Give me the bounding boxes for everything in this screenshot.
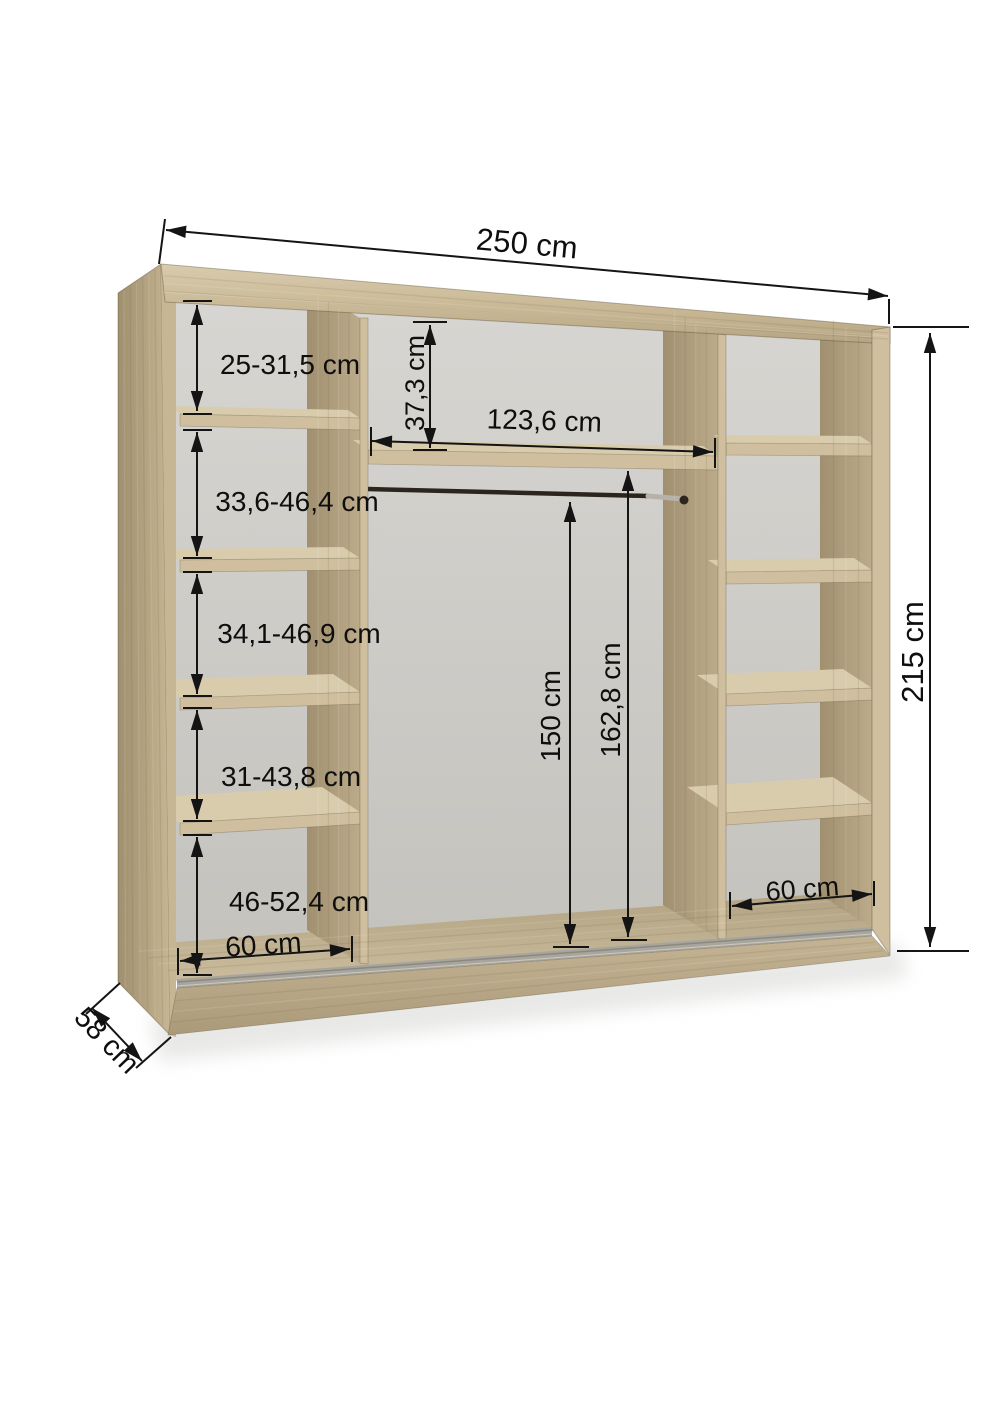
right-divider-front-edge <box>718 334 726 941</box>
rod-height-label: 150 cm <box>535 670 566 762</box>
dimension-arrowhead <box>868 288 888 300</box>
hanging-rod-metal-end <box>648 496 683 499</box>
wardrobe-dimension-diagram: 250 cm 215 cm 58 cm 25-31,5 cm 33,6-46,4… <box>0 0 992 1403</box>
dimension-arrowhead <box>924 333 936 353</box>
shelf-top <box>708 558 872 572</box>
dimension-extension-tick <box>159 219 165 264</box>
right-divider-side-face <box>663 303 718 938</box>
left-compartment-3-label: 34,1-46,9 cm <box>217 618 380 649</box>
middle-opening-height-label: 162,8 cm <box>595 642 626 757</box>
middle-top-gap-label: 37,3 cm <box>400 335 430 431</box>
diagram-canvas: 250 cm 215 cm 58 cm 25-31,5 cm 33,6-46,4… <box>0 0 992 1403</box>
shelf-edge <box>726 570 872 584</box>
right-side-panel-edge <box>872 327 890 955</box>
overall-height-label: 215 cm <box>895 601 930 703</box>
shelf-edge <box>180 558 360 572</box>
overall-depth-label: 58 cm <box>68 1001 146 1080</box>
hanging-rod-end-cap <box>680 496 689 505</box>
shelf-top <box>714 435 872 444</box>
shelf-edge <box>726 443 872 456</box>
right-section-width-label: 60 cm <box>764 871 840 907</box>
left-compartment-1-label: 25-31,5 cm <box>220 349 360 380</box>
left-section-width-label: 60 cm <box>224 926 302 962</box>
left-compartment-5-label: 46-52,4 cm <box>229 886 369 917</box>
middle-width-label: 123,6 cm <box>486 403 602 438</box>
left-compartment-2-label: 33,6-46,4 cm <box>215 486 378 517</box>
dimension-arrowhead <box>924 927 936 947</box>
left-compartment-4-label: 31-43,8 cm <box>221 761 361 792</box>
dimension-arrowhead <box>166 226 186 238</box>
